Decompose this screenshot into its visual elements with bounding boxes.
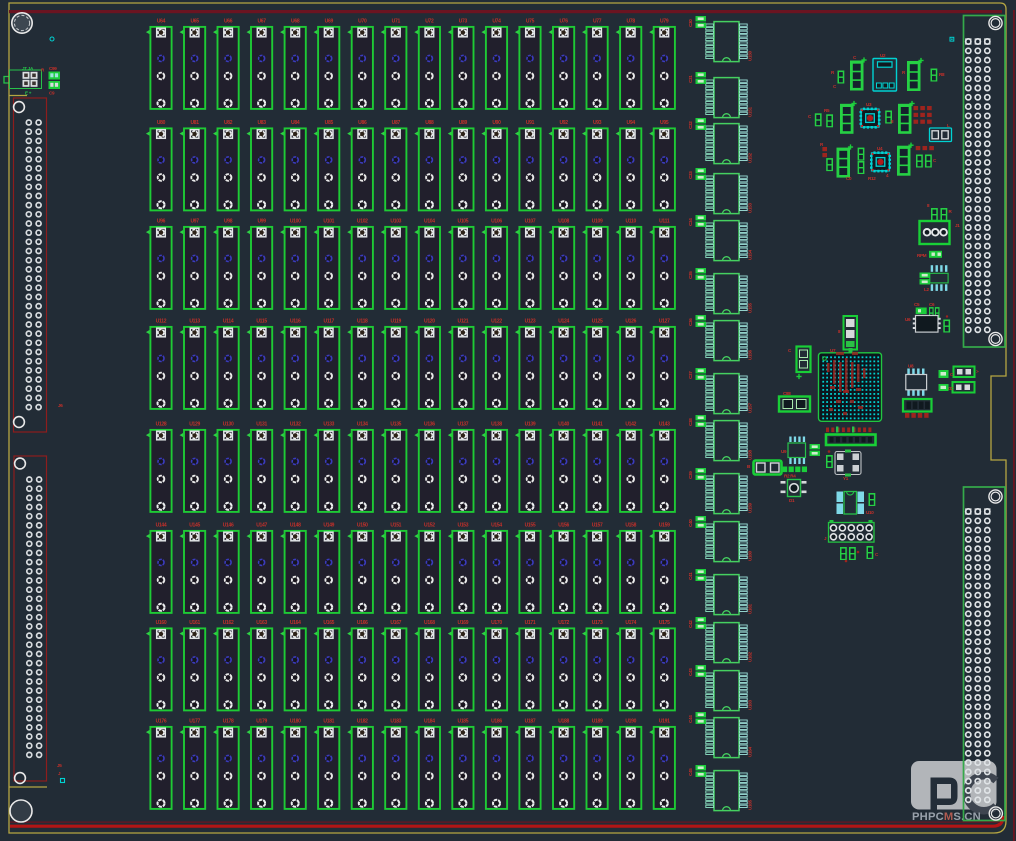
svg-text:C37: C37 [688,371,693,379]
svg-text:U77: U77 [593,19,602,25]
svg-text:U110: U110 [625,219,636,225]
svg-text:U151: U151 [748,106,753,117]
svg-text:U152: U152 [424,523,435,529]
svg-text:U104: U104 [424,219,435,225]
svg-text:C40: C40 [688,519,693,527]
svg-text:U179: U179 [256,719,267,725]
svg-text:U92: U92 [559,120,568,126]
svg-text:L2: L2 [924,287,930,292]
svg-text:U108: U108 [558,219,569,225]
svg-text:U163: U163 [748,699,753,710]
svg-text:U98: U98 [224,219,233,225]
svg-text:U175: U175 [659,620,670,626]
svg-text:U112: U112 [156,319,167,325]
svg-text:U160: U160 [156,620,167,626]
svg-text:U126: U126 [625,319,636,325]
svg-text:U10: U10 [866,510,874,515]
svg-text:U129: U129 [189,422,200,428]
svg-text:U80: U80 [157,120,166,126]
svg-text:U173: U173 [592,620,603,626]
svg-text:U154: U154 [491,523,502,529]
svg-text:U70: U70 [358,19,367,25]
svg-text:U162: U162 [748,651,753,662]
svg-text:U117: U117 [324,319,335,325]
svg-text:U155: U155 [748,302,753,313]
svg-text:U160: U160 [748,550,753,561]
svg-text:C35: C35 [688,271,693,279]
svg-text:U170: U170 [491,620,502,626]
svg-text:C45: C45 [688,768,693,776]
svg-text:U181: U181 [323,719,334,725]
svg-text:U167: U167 [390,620,401,626]
svg-text:U99: U99 [257,219,266,225]
svg-text:U118: U118 [357,319,368,325]
svg-text:U106: U106 [491,219,502,225]
svg-text:U149: U149 [323,523,334,529]
svg-text:U122: U122 [491,319,502,325]
svg-text:U65: U65 [190,19,199,25]
svg-text:U128: U128 [156,422,167,428]
svg-text:U115: U115 [256,319,267,325]
svg-text:U90: U90 [492,120,501,126]
svg-text:U81: U81 [190,120,199,126]
svg-text:U85: U85 [325,120,334,126]
svg-text:U174: U174 [625,620,636,626]
svg-text:U154: U154 [748,249,753,260]
svg-text:U6: U6 [905,317,911,322]
svg-text:U84: U84 [291,120,300,126]
svg-text:C30: C30 [688,19,693,27]
svg-text:U142: U142 [625,422,636,428]
svg-text:U74: U74 [492,19,501,25]
svg-text:U125: U125 [592,319,603,325]
svg-text:U86: U86 [358,120,367,126]
svg-text:C88: C88 [783,391,791,396]
svg-text:C33: C33 [688,171,693,179]
svg-text:U185: U185 [458,719,469,725]
svg-text:J5: J5 [57,763,62,768]
svg-text:U111: U111 [659,219,670,225]
svg-text:U4: U4 [877,146,883,151]
svg-text:U158: U158 [748,449,753,460]
svg-text:U180: U180 [290,719,301,725]
svg-text:U158: U158 [625,523,636,529]
svg-text:U109: U109 [592,219,603,225]
svg-text:U134: U134 [357,422,368,428]
svg-text:U8: U8 [908,364,914,369]
svg-text:U82: U82 [224,120,233,126]
svg-text:U190: U190 [625,719,636,725]
svg-text:U103: U103 [390,219,401,225]
svg-text:U157: U157 [592,523,603,529]
svg-text:U156: U156 [558,523,569,529]
svg-text:U139: U139 [525,422,536,428]
svg-text:U72: U72 [425,19,434,25]
svg-text:U157: U157 [748,402,753,413]
svg-text:R12: R12 [868,176,876,181]
svg-text:U189: U189 [592,719,603,725]
svg-text:J6: J6 [58,403,63,408]
svg-text:U159: U159 [659,523,670,529]
svg-text:U130: U130 [223,422,234,428]
svg-text:U105: U105 [458,219,469,225]
svg-text:U138: U138 [491,422,502,428]
svg-text:R8: R8 [939,72,945,77]
svg-text:U89: U89 [459,120,468,126]
svg-text:U78: U78 [627,19,636,25]
svg-text:C36: C36 [688,318,693,326]
svg-text:U87: U87 [392,120,401,126]
svg-text:C41: C41 [688,572,693,580]
svg-text:U177: U177 [189,719,200,725]
svg-text:U93: U93 [593,120,602,126]
svg-text:U7: U7 [830,348,836,353]
svg-text:U132: U132 [290,422,301,428]
svg-text:R2 R4: R2 R4 [784,474,796,479]
svg-text:U120: U120 [424,319,435,325]
svg-text:U141: U141 [592,422,603,428]
svg-text:U187: U187 [525,719,536,725]
svg-text:U136: U136 [424,422,435,428]
svg-text:U76: U76 [559,19,568,25]
svg-text:U68: U68 [291,19,300,25]
svg-text:U67: U67 [257,19,266,25]
svg-text:U151: U151 [390,523,401,529]
svg-text:U71: U71 [392,19,401,25]
svg-text:U147: U147 [256,523,267,529]
svg-text:C34: C34 [688,218,693,226]
svg-text:U156: U156 [748,349,753,360]
svg-text:U116: U116 [290,319,301,325]
svg-text:C38: C38 [688,418,693,426]
svg-text:U3: U3 [866,102,872,107]
svg-text:C39: C39 [688,471,693,479]
svg-text:U153: U153 [458,523,469,529]
svg-text:U161: U161 [189,620,200,626]
svg-text:JT JA: JT JA [22,66,34,71]
svg-text:U153: U153 [748,202,753,213]
svg-text:U133: U133 [323,422,334,428]
svg-text:U143: U143 [659,422,670,428]
svg-text:C9: C9 [49,91,55,96]
svg-text:U107: U107 [525,219,536,225]
svg-text:C42: C42 [688,620,693,628]
svg-text:U144: U144 [156,523,167,529]
svg-text:U166: U166 [357,620,368,626]
svg-text:U148: U148 [290,523,301,529]
svg-text:C44: C44 [688,715,693,723]
svg-text:Y1: Y1 [843,476,849,481]
svg-text:U96: U96 [157,219,166,225]
svg-text:U161: U161 [748,603,753,614]
svg-text:C6: C6 [929,302,935,307]
svg-text:U66: U66 [224,19,233,25]
svg-text:U164: U164 [290,620,301,626]
svg-text:C43: C43 [688,668,693,676]
svg-text:U94: U94 [627,120,636,126]
svg-text:U165: U165 [323,620,334,626]
svg-text:U146: U146 [223,523,234,529]
svg-text:U113: U113 [189,319,200,325]
svg-text:U91: U91 [526,120,535,126]
svg-text:U159: U159 [748,502,753,513]
svg-text:U64: U64 [157,19,166,25]
svg-text:U135: U135 [390,422,401,428]
svg-text:U79: U79 [660,19,669,25]
svg-text:E +: E + [25,91,32,96]
svg-text:U178: U178 [223,719,234,725]
svg-text:U188: U188 [558,719,569,725]
svg-text:U164: U164 [748,746,753,757]
svg-text:RPM: RPM [917,253,927,258]
svg-text:U183: U183 [390,719,401,725]
svg-text:U191: U191 [659,719,670,725]
svg-text:U145: U145 [189,523,200,529]
svg-text:U2: U2 [880,53,886,58]
svg-text:U184: U184 [424,719,435,725]
svg-text:U69: U69 [325,19,334,25]
svg-text:U163: U163 [256,620,267,626]
svg-text:U73: U73 [459,19,468,25]
svg-text:U83: U83 [257,120,266,126]
svg-text:U97: U97 [190,219,199,225]
svg-text:U88: U88 [425,120,434,126]
svg-text:U171: U171 [525,620,536,626]
svg-text:U168: U168 [424,620,435,626]
svg-text:U114: U114 [223,319,234,325]
svg-text:C31: C31 [688,75,693,83]
svg-text:U150: U150 [357,523,368,529]
svg-text:C0: C0 [846,176,852,181]
svg-text:U140: U140 [558,422,569,428]
svg-text:U95: U95 [660,120,669,126]
svg-text:U137: U137 [458,422,469,428]
svg-text:U186: U186 [491,719,502,725]
svg-text:D1: D1 [789,498,795,503]
svg-text:U172: U172 [558,620,569,626]
svg-text:U75: U75 [526,19,535,25]
svg-text:U101: U101 [323,219,334,225]
svg-text:U165: U165 [748,799,753,810]
svg-text:U155: U155 [525,523,536,529]
svg-text:U123: U123 [525,319,536,325]
svg-text:C5: C5 [914,302,920,307]
svg-text:U150: U150 [748,50,753,61]
svg-text:J1: J1 [955,223,960,228]
svg-text:U162: U162 [223,620,234,626]
svg-text:U131: U131 [256,422,267,428]
svg-text:U102: U102 [357,219,368,225]
svg-text:U9: U9 [781,449,787,454]
svg-text:R5: R5 [824,108,830,113]
svg-text:U152: U152 [748,152,753,163]
svg-text:U176: U176 [156,719,167,725]
svg-text:C32: C32 [688,121,693,129]
svg-text:C99: C99 [49,66,57,71]
svg-text:U121: U121 [458,319,469,325]
svg-text:U127: U127 [659,319,670,325]
svg-text:U182: U182 [357,719,368,725]
svg-text:U124: U124 [558,319,569,325]
svg-text:U119: U119 [391,319,402,325]
svg-text:U100: U100 [290,219,301,225]
svg-text:U169: U169 [458,620,469,626]
